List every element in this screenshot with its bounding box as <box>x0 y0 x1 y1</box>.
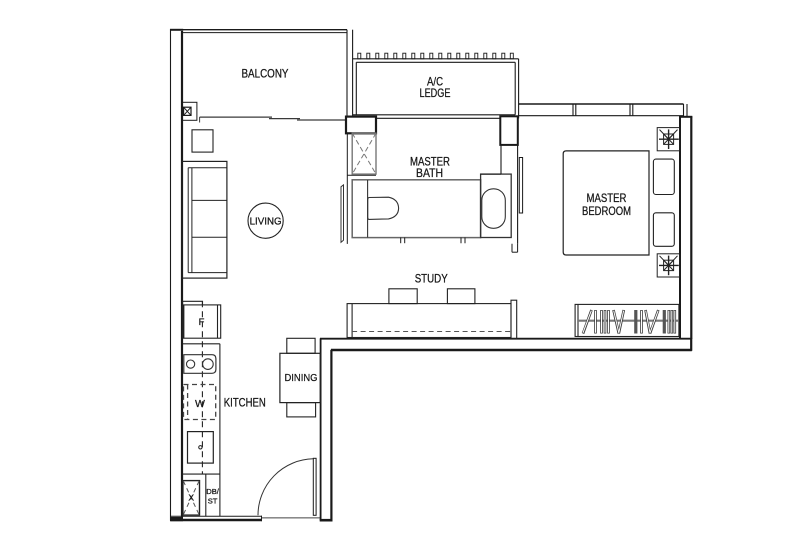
svg-text:LIVING: LIVING <box>250 216 282 228</box>
svg-text:BALCONY: BALCONY <box>242 67 289 81</box>
svg-text:DINING: DINING <box>285 372 318 384</box>
svg-text:KITCHEN: KITCHEN <box>224 398 266 410</box>
svg-text:BATH: BATH <box>416 166 443 180</box>
svg-text:X: X <box>188 493 194 503</box>
svg-text:LEDGE: LEDGE <box>420 86 451 100</box>
svg-text:ST: ST <box>208 496 218 505</box>
svg-text:DB/: DB/ <box>206 487 220 496</box>
svg-text:W: W <box>195 398 205 410</box>
svg-text:BEDROOM: BEDROOM <box>582 204 631 218</box>
svg-text:F: F <box>199 317 205 328</box>
svg-text:STUDY: STUDY <box>415 272 448 286</box>
